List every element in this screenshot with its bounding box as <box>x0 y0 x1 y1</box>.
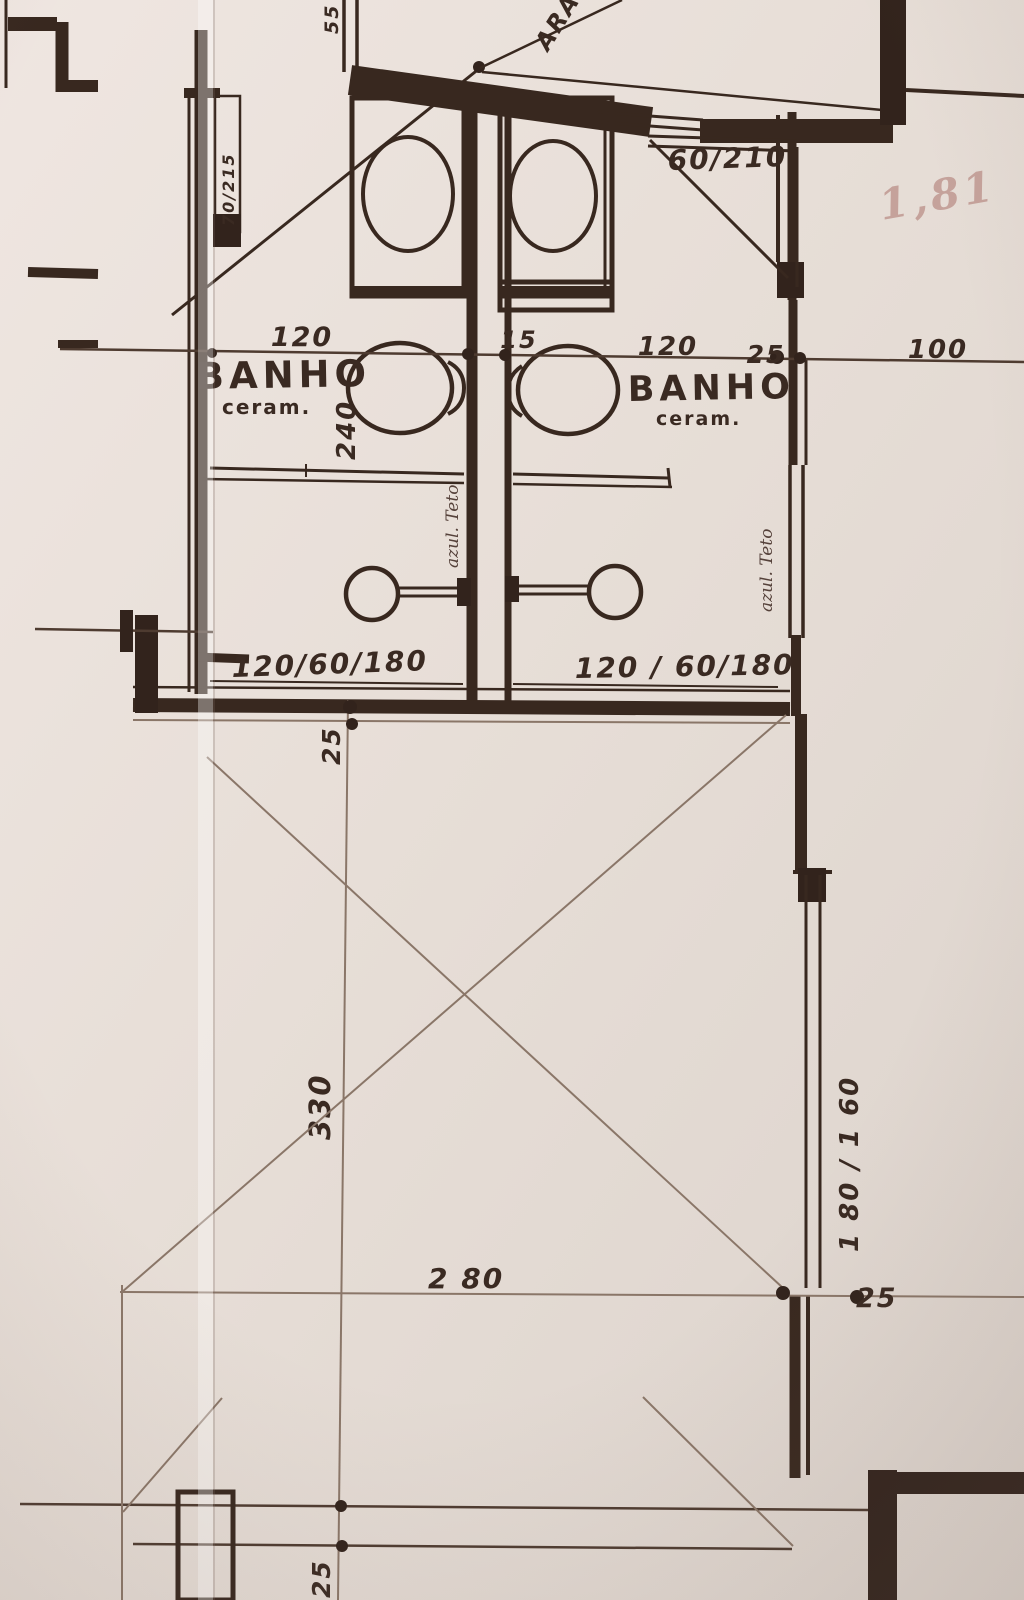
floor-plan-drawing: 70/215 ARA <box>0 0 1024 1600</box>
paper-overlays <box>0 0 1024 1600</box>
vignette <box>0 0 1024 1600</box>
